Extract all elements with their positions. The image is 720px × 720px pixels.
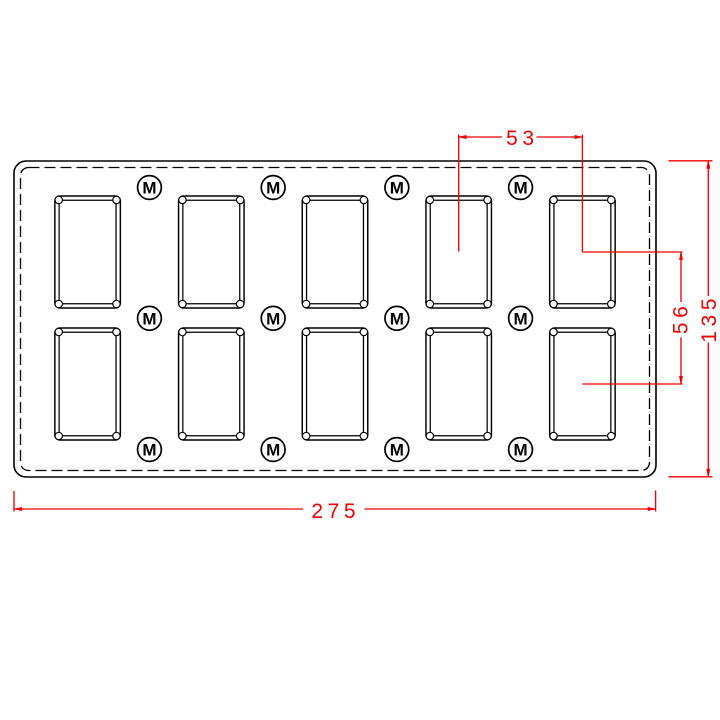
svg-text:M: M <box>390 441 404 460</box>
svg-text:135: 135 <box>698 294 720 343</box>
svg-text:56: 56 <box>669 302 692 335</box>
svg-text:53: 53 <box>506 127 539 150</box>
svg-text:M: M <box>266 179 280 198</box>
svg-text:M: M <box>513 441 527 460</box>
svg-text:M: M <box>513 310 527 329</box>
svg-text:M: M <box>142 441 156 460</box>
svg-text:M: M <box>142 179 156 198</box>
svg-text:M: M <box>390 310 404 329</box>
svg-text:275: 275 <box>311 500 360 523</box>
svg-text:M: M <box>266 441 280 460</box>
svg-text:M: M <box>390 179 404 198</box>
svg-text:M: M <box>142 310 156 329</box>
svg-text:M: M <box>513 179 527 198</box>
svg-text:M: M <box>266 310 280 329</box>
